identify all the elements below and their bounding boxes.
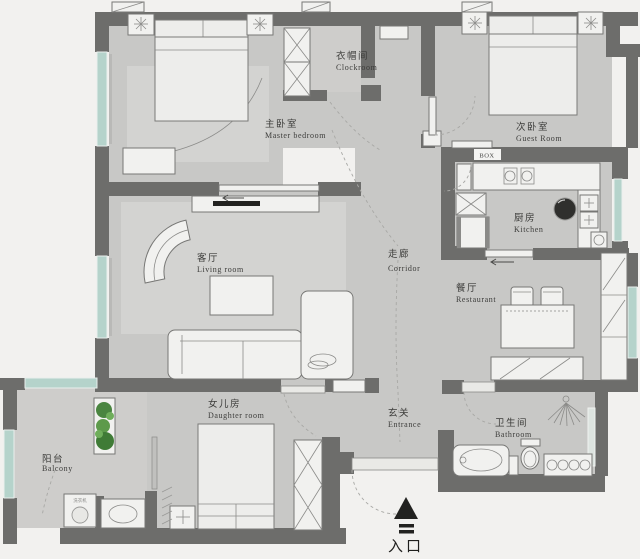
label-entrance-zh: 玄关 [388, 407, 410, 419]
label-daughter-room-zh: 女儿房 [208, 398, 241, 410]
bathroom-door-sill [462, 382, 495, 392]
counter [473, 163, 600, 190]
window-master [97, 52, 107, 146]
sink-round [554, 198, 576, 220]
entry-marker: 入口 [388, 497, 424, 555]
coffee-table [210, 276, 273, 315]
dining-table [501, 305, 574, 348]
entry-door-sill [352, 458, 438, 470]
label-restaurant-zh: 餐厅 [456, 282, 478, 294]
toilet-tank [521, 439, 540, 446]
entry-label: 入口 [388, 539, 424, 555]
label-guest-room-en: Guest Room [516, 134, 562, 143]
window-restaurant [628, 287, 637, 358]
bench [123, 148, 175, 174]
window-balcony-left [4, 430, 14, 498]
label-living-room-en: Living room [197, 265, 244, 274]
appliance [591, 232, 607, 248]
lamp-icon [253, 17, 267, 31]
label-corridor-zh: 走廊 [388, 248, 410, 260]
bed-headboard [155, 20, 248, 37]
tv [213, 201, 260, 206]
sliding-door-leaf [281, 386, 325, 393]
label-entrance-en: Entrance [388, 420, 421, 429]
label-restaurant-en: Restaurant [456, 295, 496, 304]
lamp-icon [468, 16, 482, 30]
label-kitchen-en: Kitchen [514, 225, 544, 234]
window-balcony-top [25, 378, 97, 388]
lamp-icon [134, 17, 148, 31]
sofa [168, 330, 302, 379]
label-bathroom-en: Bathroom [495, 430, 532, 439]
cabinet [380, 26, 408, 39]
dining-chair [541, 287, 563, 307]
washer-label: 洗衣机 [73, 497, 87, 504]
window-living [97, 256, 107, 338]
lamp-icon [584, 16, 598, 30]
sliding-door-leaf [219, 185, 319, 191]
laundry-basin [101, 499, 145, 528]
label-cloakroom-zh: 衣帽间 [336, 50, 369, 62]
label-balcony-en: Balcony [42, 464, 73, 473]
label-master-bedroom-en: Master bedroom [265, 131, 326, 140]
shelf [152, 437, 157, 489]
label-corridor-en: Corridor [388, 264, 420, 273]
oven-niche [457, 217, 489, 248]
sideboard [491, 357, 583, 380]
window-kitchen [614, 179, 622, 241]
washer-drum [72, 507, 88, 523]
roof-vents [112, 2, 492, 12]
wardrobe [294, 440, 322, 530]
dining-chair [511, 287, 533, 307]
cabinet [452, 141, 492, 148]
label-cloakroom-en: Clockroom [336, 63, 378, 72]
label-living-room-zh: 客厅 [197, 252, 219, 264]
curtain-line [109, 258, 112, 336]
side-cabinet [509, 456, 518, 475]
entry-arrow-icon [394, 497, 418, 519]
bed-double [489, 34, 577, 115]
label-daughter-room-en: Daughter room [208, 411, 265, 420]
hall-cabinet [333, 380, 365, 392]
floor-plan-canvas: 洗衣机 主卧室 Master bedroom 衣帽间 Clockroom 次卧室… [0, 0, 640, 559]
box-annotation: BOX [474, 149, 501, 160]
curtain-line [109, 54, 112, 144]
label-bathroom-zh: 卫生间 [495, 417, 528, 429]
floor-plan: 洗衣机 主卧室 Master bedroom 衣帽间 Clockroom 次卧室… [0, 0, 640, 559]
label-kitchen-zh: 厨房 [514, 212, 536, 224]
entrance-hall [352, 458, 438, 514]
nightstand [170, 506, 195, 529]
door-leaf [429, 97, 436, 135]
entry-door-swing [352, 470, 396, 514]
label-guest-room-zh: 次卧室 [516, 121, 549, 133]
box-label: BOX [479, 153, 494, 160]
label-master-bedroom-zh: 主卧室 [265, 118, 298, 130]
sliding-door-leaf [485, 250, 533, 257]
